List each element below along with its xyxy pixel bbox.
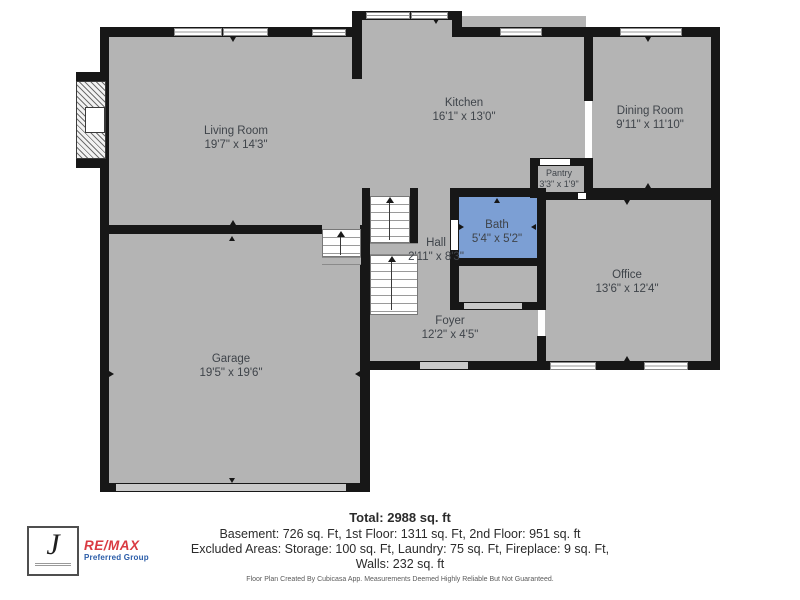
wall-segment: [450, 188, 546, 197]
room-label-pantry: Pantry 3'3" x 1'9": [539, 168, 578, 190]
staircase-main-lower: [370, 255, 418, 315]
door-opening: [578, 193, 586, 199]
summary-total: Total: 2988 sq. ft: [0, 510, 800, 525]
window: [223, 28, 268, 36]
pantry-door-opening: [540, 159, 570, 165]
room-dims: 13'6" x 12'4": [595, 283, 658, 295]
room-label-hall: Hall 2'11" x 8'3": [408, 236, 464, 264]
measure-arrow-icon: [433, 19, 439, 24]
wall-segment: [584, 37, 593, 101]
measure-arrow-icon: [494, 198, 500, 203]
closet-door-opening: [464, 303, 522, 309]
measure-arrow-icon: [109, 371, 114, 377]
room-dims: 3'3" x 1'9": [539, 179, 578, 189]
logo-decorative-line: [35, 565, 71, 566]
logo-decorative-line: [35, 563, 71, 564]
room-dims: 12'2" x 4'5": [422, 329, 479, 341]
room-label-foyer: Foyer 12'2" x 4'5": [422, 314, 479, 342]
stair-direction-line: [389, 202, 390, 240]
room-dims: 2'11" x 8'3": [408, 251, 464, 263]
office-door-opening: [538, 310, 545, 336]
room-name: Kitchen: [445, 97, 483, 109]
garage-door: [116, 484, 346, 491]
stair-up-arrow-icon: [388, 256, 396, 262]
stair-direction-line: [340, 237, 341, 255]
measure-arrow-icon: [355, 371, 360, 377]
brand-name: RE/MAX: [84, 540, 149, 552]
measure-arrow-icon: [624, 200, 630, 205]
room-name: Bath: [485, 219, 509, 231]
fireplace-stub: [76, 159, 106, 168]
window: [312, 29, 346, 36]
room-label-office: Office 13'6" x 12'4": [595, 268, 658, 296]
wall-segment: [537, 188, 546, 310]
window: [366, 12, 410, 19]
wall-segment: [450, 258, 546, 266]
window: [411, 12, 448, 19]
room-dims: 5'4" x 5'2": [472, 233, 522, 245]
fireplace-hearth: [85, 107, 105, 133]
measure-arrow-icon: [531, 224, 536, 230]
fireplace-stub: [76, 72, 106, 81]
wall-segment: [104, 225, 322, 234]
room-name: Office: [612, 269, 642, 281]
measure-arrow-icon: [459, 224, 464, 230]
window: [620, 28, 682, 36]
window: [644, 362, 688, 370]
room-name: Hall: [426, 237, 446, 249]
wall-segment: [537, 336, 546, 370]
measure-arrow-icon: [229, 478, 235, 483]
room-label-garage: Garage 19'5" x 19'6": [199, 352, 262, 380]
stair-direction-line: [391, 262, 392, 310]
disclaimer-text: Floor Plan Created By Cubicasa App. Meas…: [0, 576, 800, 583]
room-label-bath: Bath 5'4" x 5'2": [472, 218, 522, 246]
room-name: Pantry: [546, 168, 572, 178]
room-dims: 16'1" x 13'0": [432, 111, 495, 123]
measure-arrow-icon: [230, 220, 236, 225]
staircase-main-upper: [370, 196, 410, 243]
measure-arrow-icon: [624, 356, 630, 361]
room-dims: 19'5" x 19'6": [199, 367, 262, 379]
measure-arrow-icon: [230, 37, 236, 42]
room-dims: 9'11" x 11'10": [616, 119, 684, 131]
room-name: Garage: [212, 353, 250, 365]
stair-up-arrow-icon: [337, 231, 345, 237]
window: [550, 362, 596, 370]
stair-up-arrow-icon: [386, 197, 394, 203]
room-name: Dining Room: [617, 105, 683, 117]
brand-subtitle: Preferred Group: [84, 552, 149, 564]
wall-segment: [362, 188, 370, 322]
floor-plan: Living Room 19'7" x 14'3" Kitchen 16'1" …: [0, 0, 800, 600]
room-name: Living Room: [204, 125, 268, 137]
room-dims: 19'7" x 14'3": [204, 139, 267, 151]
measure-arrow-icon: [229, 236, 235, 241]
wall-segment: [352, 11, 362, 79]
measure-arrow-icon: [645, 183, 651, 188]
window: [500, 28, 542, 36]
measure-arrow-icon: [645, 37, 651, 42]
room-label-living: Living Room 19'7" x 14'3": [204, 124, 268, 152]
door-opening: [585, 101, 592, 158]
agent-logo: J: [27, 526, 79, 576]
wall-segment: [584, 188, 720, 196]
stair-landing: [322, 257, 361, 265]
room-label-dining: Dining Room 9'11" x 11'10": [616, 104, 684, 132]
room-name: Foyer: [435, 315, 464, 327]
front-door: [420, 362, 468, 369]
room-label-kitchen: Kitchen 16'1" x 13'0": [432, 96, 495, 124]
brokerage-logo: RE/MAX Preferred Group: [84, 540, 149, 564]
window: [174, 28, 222, 36]
agent-logo-letter: J: [29, 528, 77, 562]
